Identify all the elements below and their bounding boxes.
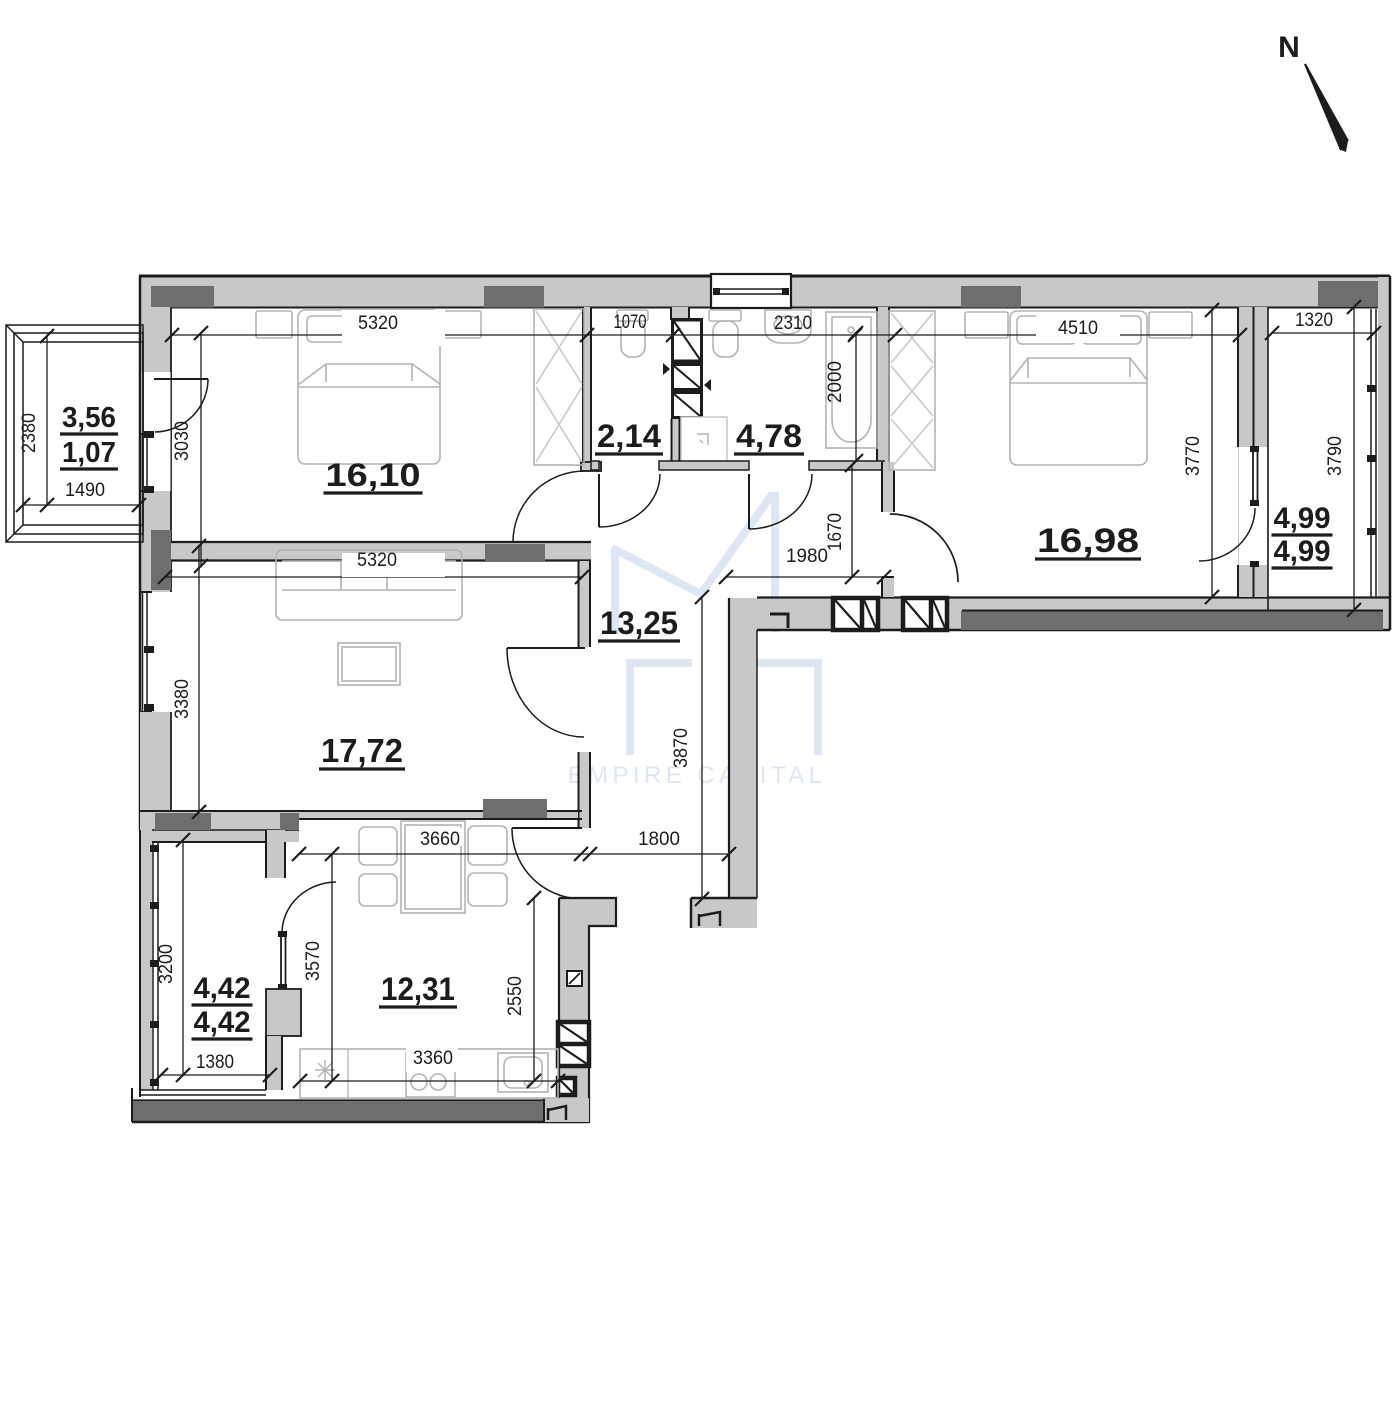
svg-text:16,10: 16,10 [326,457,421,493]
svg-text:3,56: 3,56 [62,402,116,434]
svg-text:4510: 4510 [1058,318,1098,339]
svg-text:17,72: 17,72 [321,732,403,769]
svg-text:1380: 1380 [196,1052,234,1073]
svg-text:1670: 1670 [825,513,846,551]
svg-text:5320: 5320 [357,550,397,571]
svg-text:3360: 3360 [413,1048,453,1069]
svg-text:2550: 2550 [505,976,526,1016]
svg-text:3380: 3380 [172,679,193,719]
svg-text:1490: 1490 [65,480,105,501]
svg-text:2380: 2380 [19,413,40,453]
svg-text:4,42: 4,42 [194,1006,251,1039]
svg-text:3660: 3660 [420,829,460,850]
svg-text:16,98: 16,98 [1037,522,1139,560]
svg-text:1070: 1070 [614,312,647,333]
svg-text:3790: 3790 [1325,436,1346,476]
svg-text:1320: 1320 [1295,310,1333,331]
svg-text:4,42: 4,42 [194,972,251,1005]
svg-text:N: N [1278,31,1300,64]
svg-text:4,78: 4,78 [736,418,802,454]
svg-text:EMPIRE CAPITAL: EMPIRE CAPITAL [568,762,827,789]
svg-text:3200: 3200 [156,944,177,984]
svg-text:1800: 1800 [638,829,680,850]
svg-text:4,99: 4,99 [1274,502,1331,535]
svg-text:4,99: 4,99 [1274,535,1331,568]
svg-text:2000: 2000 [825,361,846,403]
svg-text:1980: 1980 [786,546,828,567]
svg-text:3870: 3870 [671,728,692,768]
svg-text:3030: 3030 [172,421,193,461]
svg-text:5320: 5320 [358,313,398,334]
svg-text:1,07: 1,07 [62,437,116,469]
svg-text:13,25: 13,25 [600,605,678,641]
svg-text:3570: 3570 [303,941,324,981]
svg-text:3770: 3770 [1183,436,1204,476]
svg-text:2,14: 2,14 [597,418,661,454]
svg-text:12,31: 12,31 [381,971,455,1007]
svg-text:2310: 2310 [774,313,812,334]
